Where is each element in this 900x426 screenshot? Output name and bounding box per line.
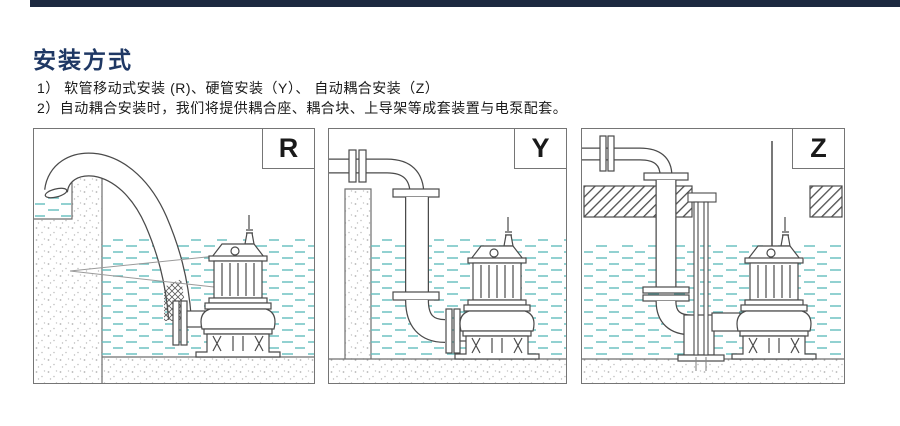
note-line-1: 1） 软管移动式安装 (R)、硬管安装（Y）、 自动耦合安装（Z）	[37, 78, 567, 98]
page-title: 安装方式	[33, 41, 133, 75]
page: { "page": { "background": "#ffffff", "to…	[0, 0, 900, 426]
figure-label-y: Y	[514, 129, 566, 169]
concrete-floor	[582, 359, 844, 383]
figure-hose-installation: R	[33, 128, 315, 384]
figure-label-r: R	[262, 129, 314, 169]
figure-auto-coupling-installation: Z	[581, 128, 845, 384]
figure-rigid-pipe-installation: Y	[328, 128, 567, 384]
figure-label-z: Z	[792, 129, 844, 169]
notes-block: 1） 软管移动式安装 (R)、硬管安装（Y）、 自动耦合安装（Z） 2）自动耦合…	[37, 78, 567, 118]
note-line-2: 2）自动耦合安装时，我们将提供耦合座、耦合块、上导架等成套装置与电泵配套。	[37, 98, 567, 118]
top-accent-bar	[30, 0, 900, 7]
